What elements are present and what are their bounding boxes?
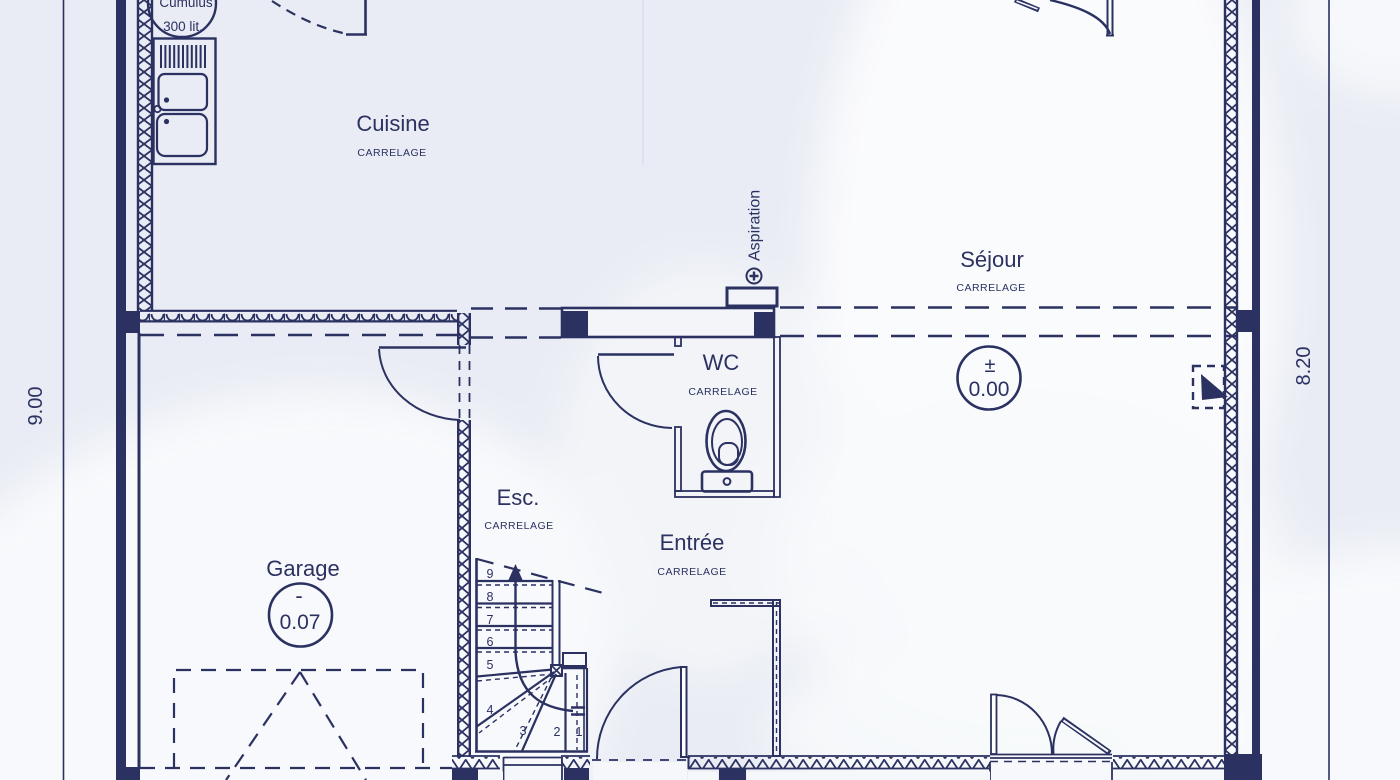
- svg-text:1: 1: [576, 725, 583, 739]
- svg-text:300 lit.: 300 lit.: [163, 19, 203, 34]
- svg-text:-: -: [295, 583, 302, 608]
- svg-text:CARRELAGE: CARRELAGE: [357, 147, 426, 159]
- svg-text:5: 5: [487, 658, 494, 672]
- svg-text:6: 6: [487, 635, 494, 649]
- svg-text:Esc.: Esc.: [497, 485, 540, 510]
- svg-text:3: 3: [520, 724, 527, 738]
- svg-text:CARRELAGE: CARRELAGE: [484, 520, 553, 532]
- svg-text:7: 7: [487, 613, 494, 627]
- svg-text:CARRELAGE: CARRELAGE: [657, 566, 726, 578]
- svg-text:±: ±: [985, 355, 996, 377]
- svg-text:WC: WC: [703, 350, 740, 375]
- svg-text:8.20: 8.20: [1293, 347, 1315, 386]
- svg-text:2: 2: [554, 725, 561, 739]
- svg-text:8: 8: [487, 590, 494, 604]
- svg-text:Cumulus: Cumulus: [159, 0, 213, 10]
- svg-text:4: 4: [487, 703, 494, 717]
- svg-text:Cuisine: Cuisine: [356, 111, 429, 136]
- svg-text:Entrée: Entrée: [660, 530, 725, 555]
- svg-text:Aspiration: Aspiration: [747, 190, 764, 261]
- svg-text:Séjour: Séjour: [960, 247, 1024, 272]
- svg-text:Garage: Garage: [266, 556, 339, 581]
- svg-text:CARRELAGE: CARRELAGE: [956, 282, 1025, 294]
- svg-text:CARRELAGE: CARRELAGE: [688, 386, 757, 398]
- svg-text:9.00: 9.00: [25, 387, 47, 426]
- svg-text:0.00: 0.00: [969, 378, 1010, 401]
- svg-text:9: 9: [487, 567, 494, 581]
- svg-text:0.07: 0.07: [280, 611, 321, 634]
